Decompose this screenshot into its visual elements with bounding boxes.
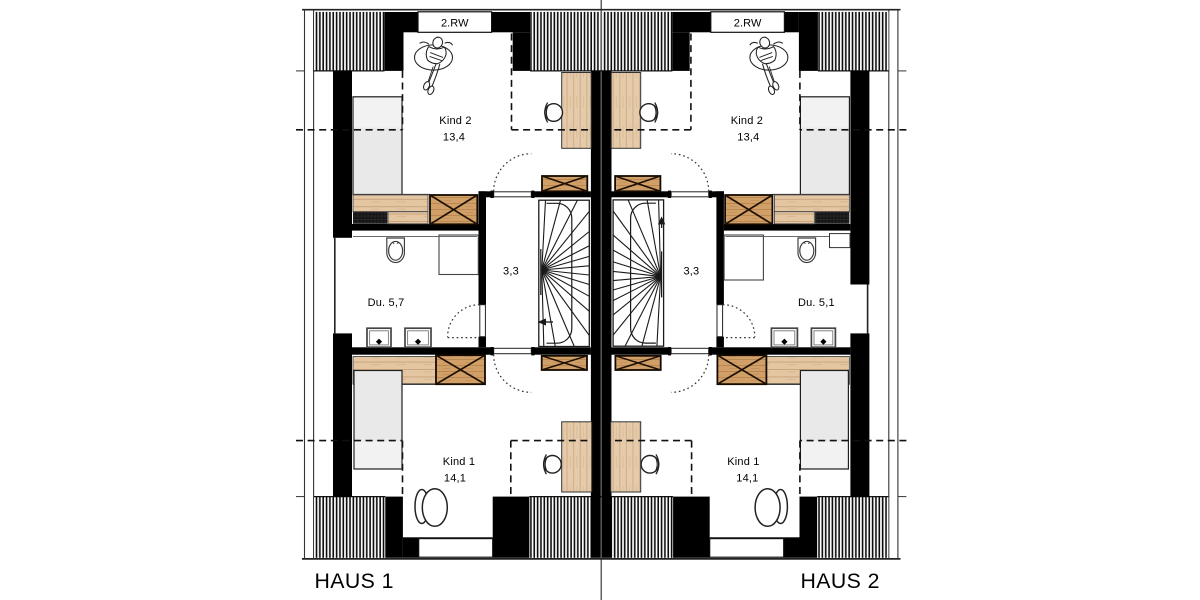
svg-text:Kind 1: Kind 1	[443, 456, 475, 468]
svg-text:Kind 1: Kind 1	[727, 456, 759, 468]
svg-text:13,4: 13,4	[737, 132, 759, 144]
svg-text:Kind 2: Kind 2	[731, 115, 763, 127]
svg-text:Du. 5,7: Du. 5,7	[368, 297, 405, 309]
svg-text:HAUS 1: HAUS 1	[315, 569, 394, 593]
svg-text:HAUS 2: HAUS 2	[801, 569, 880, 593]
svg-text:Du. 5,1: Du. 5,1	[798, 297, 835, 309]
svg-text:2.RW: 2.RW	[441, 18, 469, 30]
svg-text:3,3: 3,3	[503, 266, 519, 278]
svg-text:13,4: 13,4	[443, 132, 465, 144]
svg-text:14,1: 14,1	[444, 473, 466, 485]
svg-text:Kind 2: Kind 2	[439, 115, 471, 127]
svg-text:3,3: 3,3	[683, 266, 699, 278]
svg-text:2.RW: 2.RW	[734, 18, 762, 30]
svg-text:14,1: 14,1	[736, 473, 758, 485]
